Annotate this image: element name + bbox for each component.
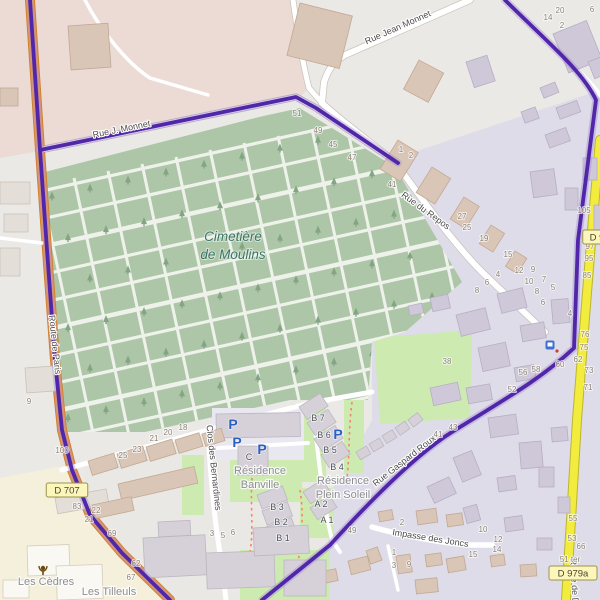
building-block-label: B 7 [311,413,325,423]
house-number: 1 [392,548,397,557]
building [416,508,438,525]
house-number: 83 [73,502,82,511]
svg-text:D 9: D 9 [590,233,600,244]
building [0,182,30,204]
area-name-label: Les Cèdres [18,576,75,588]
house-number: 6 [485,278,490,287]
house-number: 95 [585,254,594,263]
building-block-label: C [246,452,253,462]
house-number: 105 [577,206,591,215]
building [565,188,578,210]
parking-icon: P [333,426,342,442]
building [143,535,207,578]
house-number: 4 [568,309,573,318]
house-number: 66 [577,542,586,551]
house-number: 52 [508,385,517,394]
house-number: 5 [221,531,226,540]
house-number: 75 [580,343,589,352]
house-number: 6 [231,528,236,537]
house-number: 20 [164,428,173,437]
house-number: 15 [504,250,513,259]
building-block-label: B 6 [317,430,331,440]
house-number: 21 [150,434,159,443]
building [446,556,466,573]
building [478,342,510,371]
house-number: 85 [583,271,592,280]
cemetery-name-label: Cimetière [204,229,262,244]
house-number: 60 [556,360,565,369]
building [446,513,464,527]
house-number: 71 [584,383,593,392]
house-number: 45 [329,140,338,149]
building [537,538,552,550]
house-number: 25 [463,223,472,232]
house-number: 43 [449,423,458,432]
house-number: 55 [569,514,578,523]
area-name-label: Banville [241,479,280,491]
house-number: 2 [400,518,405,527]
house-number: 47 [348,153,357,162]
house-number: 49 [348,526,357,535]
building [158,520,191,537]
house-number: 67 [127,573,136,582]
house-number: 6 [541,298,546,307]
house-number: 9 [531,265,536,274]
house-number: 1 [399,145,404,154]
house-number: 21 [85,515,94,524]
house-number: 73 [585,366,594,375]
house-number: 3 [210,529,215,538]
house-number: 69 [108,529,117,538]
road-ref-badge: D 9 [583,230,600,244]
house-number: 100 [55,446,69,455]
building-block-label: B 4 [330,462,344,472]
house-number: 19 [480,234,489,243]
house-number: 10 [525,277,534,286]
building [539,467,554,487]
parking-icon: P [257,441,266,457]
house-number: 49 [314,126,323,135]
house-number: 25 [119,451,128,460]
house-number: 15 [469,550,478,559]
house-number: 8 [475,286,480,295]
svg-text:D 707: D 707 [54,486,79,497]
building-block-label: B 1 [276,533,290,543]
area-name-label: Résidence [317,475,369,487]
building [519,441,543,469]
building [4,214,28,232]
building-block-label: B 3 [270,502,284,512]
house-number: 56 [519,368,528,377]
house-number: 62 [132,559,141,568]
house-number: 18 [179,423,188,432]
building [520,564,537,577]
area-name-label: Résidence [234,465,286,477]
house-number: 5 [551,283,556,292]
house-number: 6 [590,5,595,14]
building [551,427,568,442]
building [504,515,524,531]
building-block-label: B 2 [274,517,288,527]
house-number: 41 [388,180,397,189]
house-number: 10 [479,525,488,534]
house-number: 62 [574,355,583,364]
house-number: 14 [493,545,502,554]
building [0,88,18,106]
house-number: 27 [458,212,467,221]
house-number: 12 [494,535,503,544]
house-number: 22 [92,506,101,515]
parking-icon: P [232,434,241,450]
building-block-label: A 1 [320,515,333,525]
building [497,475,517,491]
area-name-label: Les Tilleuls [82,586,137,598]
house-number: 51 ter [560,555,581,564]
building-block-label: A 2 [314,499,327,509]
house-number: 76 [581,330,590,339]
building [206,551,275,589]
house-number: 8 [535,287,540,296]
house-number: 9 [27,397,32,406]
building [594,205,600,231]
building [530,169,557,198]
building [415,578,438,594]
house-number: 38 [443,357,452,366]
house-number: 4 [496,270,501,279]
building [488,414,519,438]
building-block-label: B 5 [323,445,337,455]
house-number: 3 [392,561,397,570]
svg-text:D 979a: D 979a [558,569,589,580]
building [68,23,111,70]
building [490,554,505,567]
house-number: 51 [293,109,302,118]
house-number: 20 [556,6,565,15]
map-canvas[interactable]: Cimetièrede MoulinsRue J. MonnetRue Jean… [0,0,600,600]
house-number: 12 [515,266,524,275]
road-ref-badge: D 979a [549,566,597,580]
house-number: 2 [560,21,565,30]
house-number: 23 [133,445,142,454]
house-number: 9 [407,560,412,569]
parking-icon: P [228,416,237,432]
house-number: 2 [409,151,414,160]
house-number: 7 [542,275,547,284]
cemetery-name-label: de Moulins [200,247,266,262]
building [378,510,394,522]
house-number: 41 [434,430,443,439]
building [0,248,20,276]
road-ref-badge: D 707 [46,483,88,497]
house-number: 58 [532,365,541,374]
house-number: 14 [544,13,553,22]
building [425,553,443,567]
building [25,366,57,393]
building [558,497,570,513]
